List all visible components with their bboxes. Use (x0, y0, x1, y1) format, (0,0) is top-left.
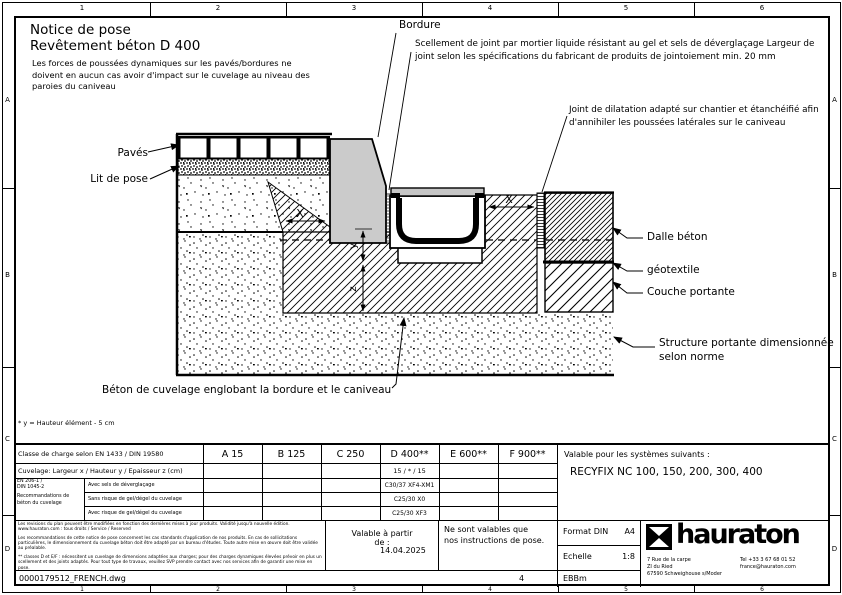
channel-foot (398, 247, 482, 263)
beton-row-3-d400: C25/30 XF3 (380, 506, 439, 520)
valid-systems-label: Valable pour les systèmes suivants : (564, 450, 710, 459)
legal-p2: Les recommandations de cette notice de p… (18, 536, 322, 552)
bordure-leader (378, 33, 396, 137)
cuvelage-d400-value: 15 / * / 15 (380, 463, 439, 478)
bordure-label: Bordure (399, 19, 441, 31)
ruler-row-c: C (2, 435, 13, 443)
beton-row-2-d400: C25/30 X0 (380, 492, 439, 506)
drawing-file-name: 0000179512_FRENCH.dwg (19, 570, 419, 587)
brand-contact: Tel +33 3 67 68 01 52 france@hauraton.co… (740, 557, 828, 571)
ruler-col-4: 4 (480, 3, 500, 13)
revision-code: EBBm (563, 570, 633, 587)
joint-dilatation-leader (542, 116, 567, 192)
y-footnote: * y = Hauteur élément - 5 cm (18, 419, 115, 427)
norm-caption: Recommandations de béton du cuvelage (17, 494, 83, 506)
joint-dilatation-label: Joint de dilatation adapté sur chantier … (569, 104, 841, 130)
paves-leader (148, 145, 179, 152)
dim-y-label: y (348, 243, 359, 249)
brand-block: hauraton 7 Rue de la carpe ZI du Ried 67… (640, 520, 830, 587)
lit-de-pose-label: Lit de pose (74, 173, 148, 185)
paves-label: Pavés (98, 147, 148, 159)
ruler-row-d-r: D (829, 545, 840, 553)
brand-address: 7 Rue de la carpe ZI du Ried 67590 Schwe… (647, 557, 737, 578)
scale-row: Echelle 1:8 (563, 552, 635, 561)
valid-from-date: 14.04.2025 (380, 546, 426, 555)
load-class-row-label: Classe de charge selon EN 1433 / DIN 195… (18, 445, 201, 463)
dim-x-right-label: X (505, 193, 513, 206)
paver-block (211, 139, 237, 158)
norm-line2: DIN 1045-2 (17, 485, 83, 491)
paver-block (241, 139, 267, 158)
legal-text: Les revisions du plan peuvent être modif… (18, 522, 322, 574)
format-row: Format DIN A4 (563, 527, 635, 536)
class-c250: C 250 (321, 445, 380, 463)
format-value: A4 (624, 527, 635, 536)
brand-email: france@hauraton.com (740, 564, 828, 571)
sheet-description: Les forces de poussées dynamiques sur le… (32, 58, 324, 93)
beton-row-1-d400: C30/37 XF4-XM1 (380, 478, 439, 492)
geotextile-leader (613, 263, 643, 271)
ruler-row-a: A (2, 96, 13, 104)
dalle-beton-leader (613, 228, 643, 238)
drawing-sheet: { "ruler": { "cols": ["1","2","3","4","5… (0, 0, 842, 595)
geotextile-label: géotextile (647, 264, 700, 276)
ruler-row-d: D (2, 545, 13, 553)
scale-value: 1:8 (622, 552, 635, 561)
sheet-title-line1: Notice de pose (30, 22, 131, 38)
couche-portante-leader (613, 282, 643, 293)
joint-dilatation-strip (537, 193, 544, 248)
beton-row-3-label: Avec risque de gel/dégel du cuvelage (88, 506, 201, 520)
structure-portante-label: Structure portante dimensionnée selon no… (659, 336, 842, 364)
scale-label: Echelle (563, 552, 592, 561)
beton-cuvelage-label: Béton de cuvelage englobant la bordure e… (102, 384, 391, 396)
paver-block (271, 139, 297, 158)
class-a15: A 15 (203, 445, 262, 463)
valid-from-cell: Valable à partir de : (332, 529, 432, 547)
grate-clip-right (475, 193, 484, 198)
sheet-title-line2: Revêtement béton D 400 (30, 38, 200, 54)
title-block-table: Classe de charge selon EN 1433 / DIN 195… (14, 443, 830, 587)
scellement-label: Scellement de joint par mortier liquide … (415, 38, 829, 64)
ruler-col-3: 3 (344, 3, 364, 13)
ruler-col-5: 5 (616, 3, 636, 13)
lit-de-pose-layer (178, 159, 330, 175)
class-e600: E 600** (439, 445, 498, 463)
hauraton-logo-icon (646, 524, 672, 550)
class-b125: B 125 (262, 445, 321, 463)
ruler-col-6: 6 (752, 3, 772, 13)
ruler-row-b: B (2, 271, 13, 279)
class-f900: F 900** (498, 445, 557, 463)
legal-p1: Les revisions du plan peuvent être modif… (18, 522, 322, 533)
legal-p3: ** classes D et E/F : nécessitent un cuv… (18, 555, 322, 571)
bordure-curb (330, 139, 386, 243)
norm-ref-cell: EN 206-1 / DIN 1045-2 Recommandations de… (17, 479, 83, 507)
grate-clip-left (391, 193, 400, 198)
beton-row-1-label: Avec sels de déverglaçage (88, 478, 201, 492)
dalle-beton-label: Dalle béton (647, 231, 707, 243)
paver-block (301, 139, 327, 158)
format-label: Format DIN (563, 527, 608, 536)
valid-systems-value: RECYFIX NC 100, 150, 200, 300, 400 (570, 466, 763, 478)
scellement-leader (389, 52, 411, 190)
channel-grate (391, 188, 484, 196)
couche-portante-block (545, 263, 613, 312)
ruler-col-1: 1 (72, 3, 92, 13)
dalle-beton-block (545, 193, 613, 262)
cuvelage-row-label: Cuvelage: Largeur x / Hauteur y / Epaiss… (18, 463, 201, 478)
couche-portante-label: Couche portante (647, 286, 735, 298)
instructions-note: Ne sont valables que nos instructions de… (444, 525, 556, 547)
paver-block (181, 139, 207, 158)
class-d400: D 400** (380, 445, 439, 463)
ruler-row-b-r: B (829, 271, 840, 279)
ruler-row-c-r: C (829, 435, 840, 443)
lit-de-pose-leader (150, 166, 179, 179)
valid-from-label: Valable à partir (332, 529, 432, 538)
structure-portante-leader (614, 337, 655, 347)
ruler-col-2: 2 (208, 3, 228, 13)
ruler-row-a-r: A (829, 96, 840, 104)
sheet-number: 4 (519, 570, 539, 587)
beton-row-2-label: Sans risque de gel/dégel du cuvelage (88, 492, 201, 506)
dim-z-label: z (348, 286, 359, 291)
brand-wordmark: hauraton (676, 522, 799, 548)
dim-x-left-label: X (296, 207, 304, 220)
brand-phone: Tel +33 3 67 68 01 52 (740, 557, 828, 564)
